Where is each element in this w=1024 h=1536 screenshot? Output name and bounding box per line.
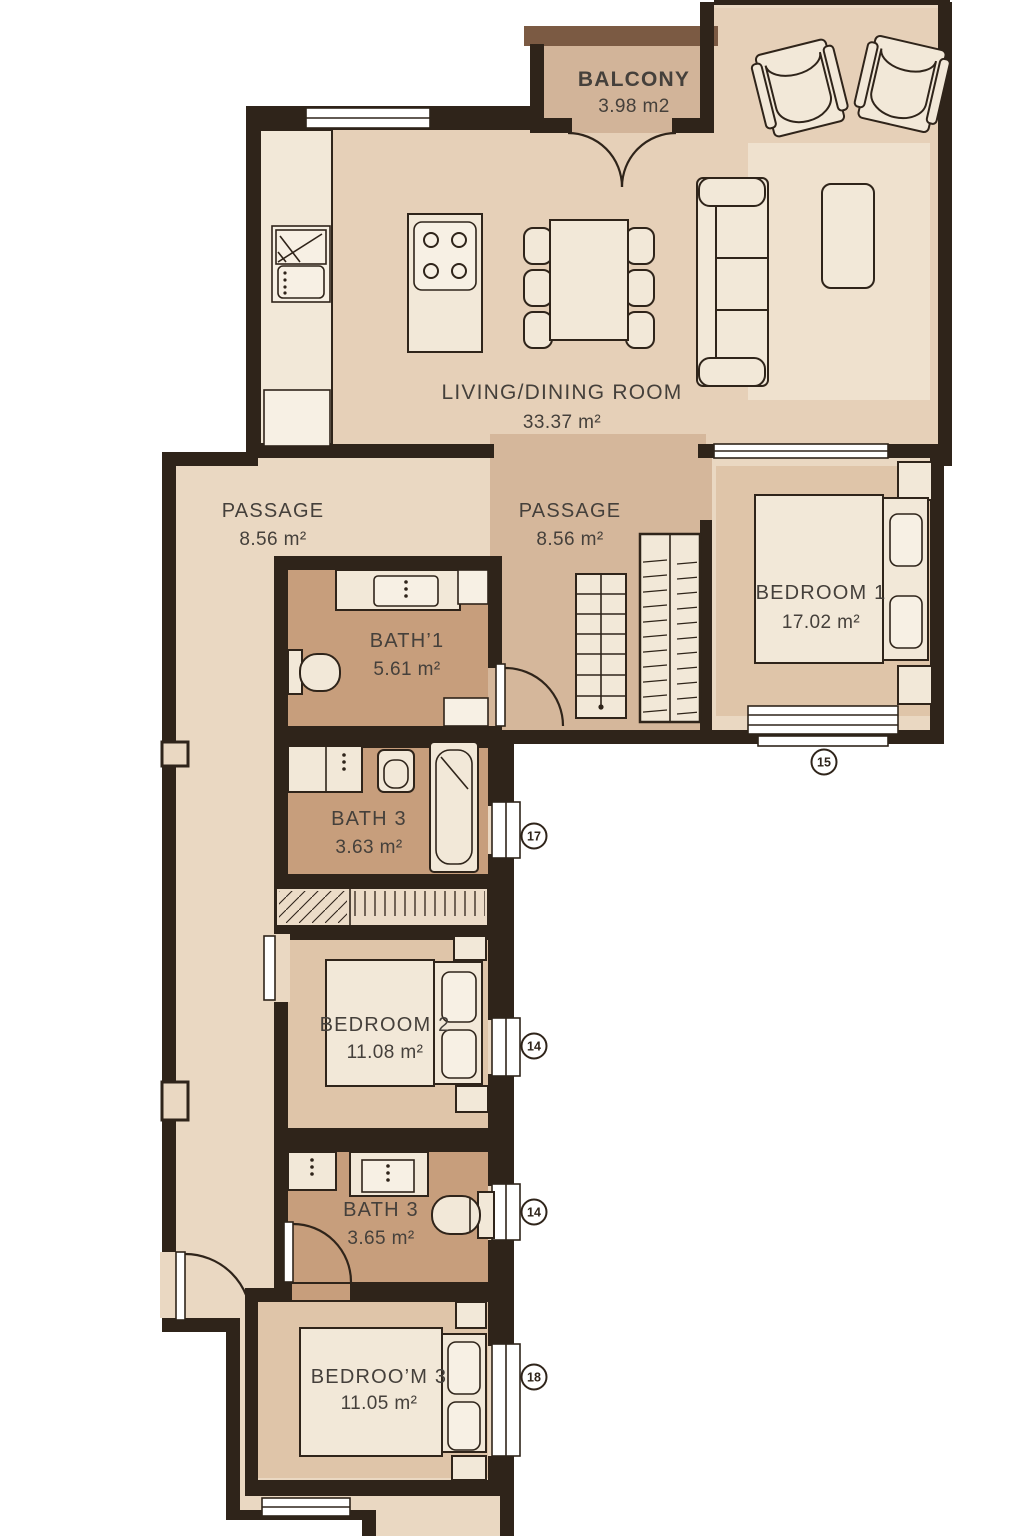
room-name-bath3-upper: BATH 3 (331, 808, 407, 830)
armchair (852, 34, 953, 135)
position-markers: 15 17 14 14 18 (522, 750, 837, 1390)
window-bedroom2-east (492, 1018, 520, 1076)
svg-text:14: 14 (527, 1206, 541, 1220)
closet-hatch (279, 891, 347, 923)
dining-chair (626, 228, 654, 264)
room-area-bath3-upper: 3.63 m² (335, 837, 402, 858)
corridor-pilaster-2 (162, 1082, 188, 1120)
bedroom2-door-leaf (264, 936, 275, 1000)
svg-text:15: 15 (817, 756, 831, 770)
toilet-icon (288, 650, 340, 694)
nightstand (456, 1302, 486, 1328)
kitchen-appliance (264, 390, 330, 446)
dining-set (524, 220, 654, 348)
cooktop (414, 222, 476, 290)
nightstand (452, 1456, 486, 1480)
bedroom2-closet (276, 888, 488, 926)
svg-text:17: 17 (527, 830, 541, 844)
room-name-bedroom2: BEDROOM 2 (320, 1014, 451, 1036)
dining-chair (524, 270, 552, 306)
window-bath3-lower-east (492, 1184, 520, 1240)
room-name-bedroom3: BEDROO’M 3 (311, 1366, 447, 1388)
room-area-bedroom1: 17.02 m² (782, 612, 860, 633)
svg-text:14: 14 (527, 1040, 541, 1054)
bathtub (430, 742, 478, 872)
room-name-passage-left: PASSAGE (222, 500, 325, 522)
bedroom1-door-opening (700, 458, 712, 520)
window-bedroom1-south (748, 706, 898, 746)
dining-chair (626, 312, 654, 348)
floor-plan-page: BALCONY 3.98 m2 LIVING/DINING ROOM 33.37… (0, 0, 1024, 1536)
nightstand (898, 462, 932, 500)
staircase (576, 574, 626, 718)
closet-ticks (353, 891, 485, 923)
room-name-bath3-lower: BATH 3 (343, 1199, 419, 1221)
balcony-top-wall (524, 26, 718, 46)
sofa (697, 178, 768, 386)
marker-14b: 14 (522, 1200, 547, 1225)
marker-14a: 14 (522, 1034, 547, 1059)
wardrobe-hangers (643, 552, 668, 716)
room-area-bath1: 5.61 m² (373, 659, 440, 680)
window-bedroom3-south (262, 1498, 350, 1516)
svg-text:18: 18 (527, 1371, 541, 1385)
room-name-bath1: BATH’1 (370, 630, 445, 652)
room-name-bedroom1: BEDROOM 1 (756, 582, 887, 604)
room-area-balcony: 3.98 m2 (598, 96, 669, 117)
pillow (448, 1342, 480, 1394)
marker-15: 15 (812, 750, 837, 775)
dining-chair (626, 270, 654, 306)
room-area-bath3-lower: 3.65 m² (347, 1228, 414, 1249)
sofa-armrest (699, 358, 765, 386)
bed-mattress (755, 495, 883, 663)
nightstand (898, 666, 932, 704)
sofa-armrest (699, 178, 765, 206)
room-area-passage-right: 8.56 m² (536, 529, 603, 550)
toilet-icon (432, 1192, 494, 1238)
room-name-passage-right: PASSAGE (519, 500, 622, 522)
bath3-lower-door-opening (292, 1284, 350, 1300)
marker-17: 17 (522, 824, 547, 849)
nightstand (456, 1086, 488, 1112)
balcony-door-jamb-left (530, 118, 572, 133)
room-name-living: LIVING/DINING ROOM (442, 381, 683, 404)
bath3l-vanity-left (288, 1152, 336, 1190)
window-bedroom1-north (714, 444, 888, 458)
room-name-balcony: BALCONY (578, 68, 690, 91)
pillow (448, 1402, 480, 1450)
coffee-table (822, 184, 874, 288)
room-area-living: 33.37 m² (523, 412, 601, 433)
dining-chair (524, 312, 552, 348)
window-bedroom3-east (492, 1344, 520, 1456)
nightstand (454, 936, 486, 960)
balcony-door-jamb-right (672, 118, 714, 133)
bath3u-vanity (288, 746, 362, 792)
room-area-bedroom2: 11.08 m² (347, 1042, 424, 1063)
passage-wardrobe (640, 534, 700, 722)
dining-chair (524, 228, 552, 264)
dining-table (550, 220, 628, 340)
bed-mattress (300, 1328, 442, 1456)
floor-plan: BALCONY 3.98 m2 LIVING/DINING ROOM 33.37… (0, 0, 1024, 1536)
bath1-shower-tray (444, 698, 488, 726)
room-area-passage-left: 8.56 m² (239, 529, 306, 550)
bath1-niche (458, 570, 488, 604)
toilet-icon (378, 750, 414, 792)
window-bath3-upper-east (492, 802, 520, 858)
corridor-pilaster-1 (162, 742, 188, 766)
marker-18: 18 (522, 1365, 547, 1390)
pillow (442, 1030, 476, 1078)
pillow (890, 596, 922, 648)
room-area-bedroom3: 11.05 m² (341, 1393, 418, 1414)
pillow (890, 514, 922, 566)
window-living-north (306, 108, 430, 128)
wardrobe-hangers (672, 552, 697, 716)
